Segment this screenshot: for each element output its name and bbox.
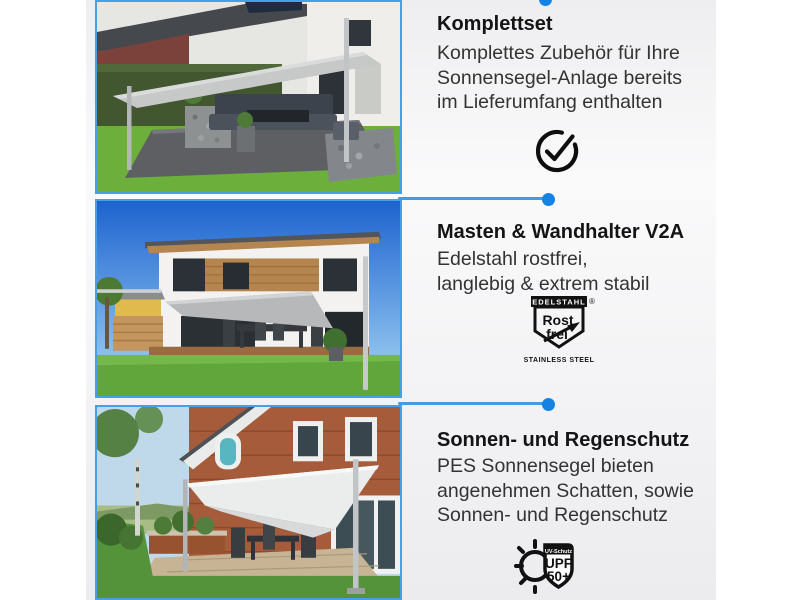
connector-dot xyxy=(542,193,555,206)
body-line: PES Sonnensegel bieten xyxy=(437,454,694,479)
photo-regenschutz xyxy=(95,405,402,600)
connector-line xyxy=(398,197,549,200)
steel-post xyxy=(363,256,368,389)
upf-badge-icon: UV-Schutz UPF 50+ xyxy=(513,528,585,598)
garden-lounge-scene xyxy=(97,2,400,192)
section-body-regenschutz: PES Sonnensegel bieten angenehmen Schatt… xyxy=(437,454,694,528)
body-line: Sonnen- und Regenschutz xyxy=(437,503,694,528)
steel-post xyxy=(183,479,188,571)
section-body-masten: Edelstahl rostfrei, langlebig & extrem s… xyxy=(437,247,649,296)
svg-text:EDELSTAHL: EDELSTAHL xyxy=(532,298,585,307)
section-title-komplettset: Komplettset xyxy=(437,11,553,37)
chair xyxy=(231,528,245,558)
svg-text:STAINLESS STEEL: STAINLESS STEEL xyxy=(524,357,595,364)
yellow-house xyxy=(115,300,161,316)
body-line: Komplettes Zubehör für Ihre xyxy=(437,41,682,66)
photo-komplettset xyxy=(95,0,402,194)
section-body-komplettset: Komplettes Zubehör für Ihre Sonnensegel-… xyxy=(437,41,682,115)
brick-house-scene xyxy=(97,407,400,598)
body-line: Edelstahl rostfrei, xyxy=(437,247,649,272)
steel-post xyxy=(353,459,359,592)
body-line: im Lieferumfang enthalten xyxy=(437,90,682,115)
fence xyxy=(113,316,163,351)
svg-text:®: ® xyxy=(589,297,595,306)
rostfrei-badge-icon: EDELSTAHL ® Rost frei STAINLESS STEEL xyxy=(523,295,601,369)
body-line: angenehmen Schatten, sowie xyxy=(437,479,694,504)
svg-text:50+: 50+ xyxy=(547,569,570,584)
connector-line xyxy=(398,402,549,405)
section-title-masten: Masten & Wandhalter V2A xyxy=(437,219,684,245)
white-house-scene xyxy=(97,201,400,396)
body-line: Sonnensegel-Anlage bereits xyxy=(437,66,682,91)
body-line: langlebig & extrem stabil xyxy=(437,272,649,297)
chair xyxy=(223,320,235,347)
steel-post xyxy=(127,86,132,170)
section-title-regenschutz: Sonnen- und Regenschutz xyxy=(437,427,689,453)
check-circle-icon xyxy=(533,126,581,174)
connector-dot xyxy=(542,398,555,411)
steel-post xyxy=(344,18,349,162)
svg-text:UV-Schutz: UV-Schutz xyxy=(545,549,572,555)
product-infographic: Komplettset Komplettes Zubehör für Ihre … xyxy=(0,0,800,600)
photo-masten xyxy=(95,199,402,398)
